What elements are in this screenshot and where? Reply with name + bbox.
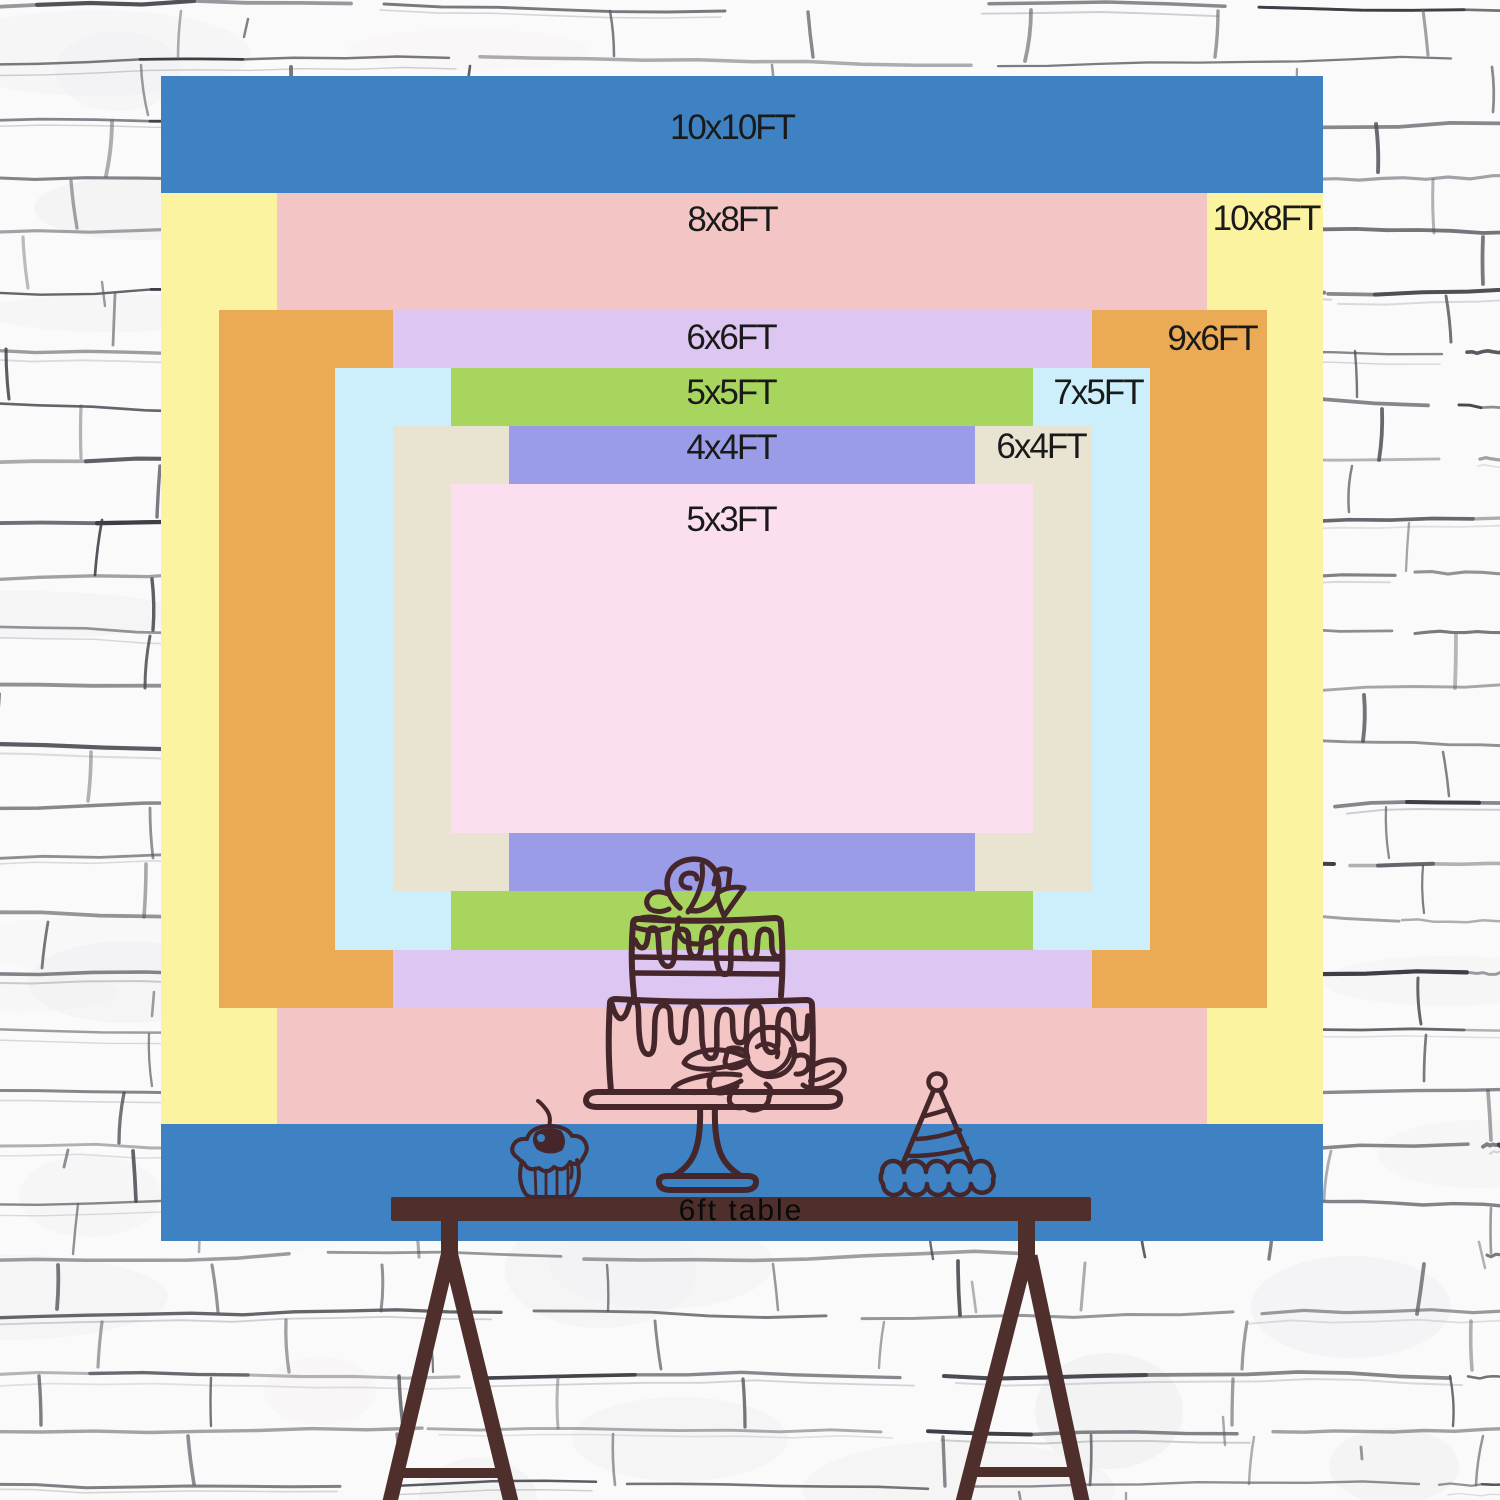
svg-text:6ft table: 6ft table — [679, 1194, 804, 1227]
svg-text:6x6FT: 6x6FT — [686, 318, 777, 357]
svg-text:7x5FT: 7x5FT — [1053, 373, 1144, 412]
svg-text:4x4FT: 4x4FT — [686, 428, 777, 467]
svg-text:6x4FT: 6x4FT — [996, 427, 1087, 466]
svg-text:9x6FT: 9x6FT — [1167, 319, 1258, 358]
svg-text:5x3FT: 5x3FT — [686, 500, 777, 539]
svg-text:5x5FT: 5x5FT — [686, 373, 777, 412]
svg-text:10x8FT: 10x8FT — [1213, 199, 1321, 238]
svg-text:8x8FT: 8x8FT — [687, 200, 778, 239]
svg-text:10x10FT: 10x10FT — [670, 108, 796, 147]
